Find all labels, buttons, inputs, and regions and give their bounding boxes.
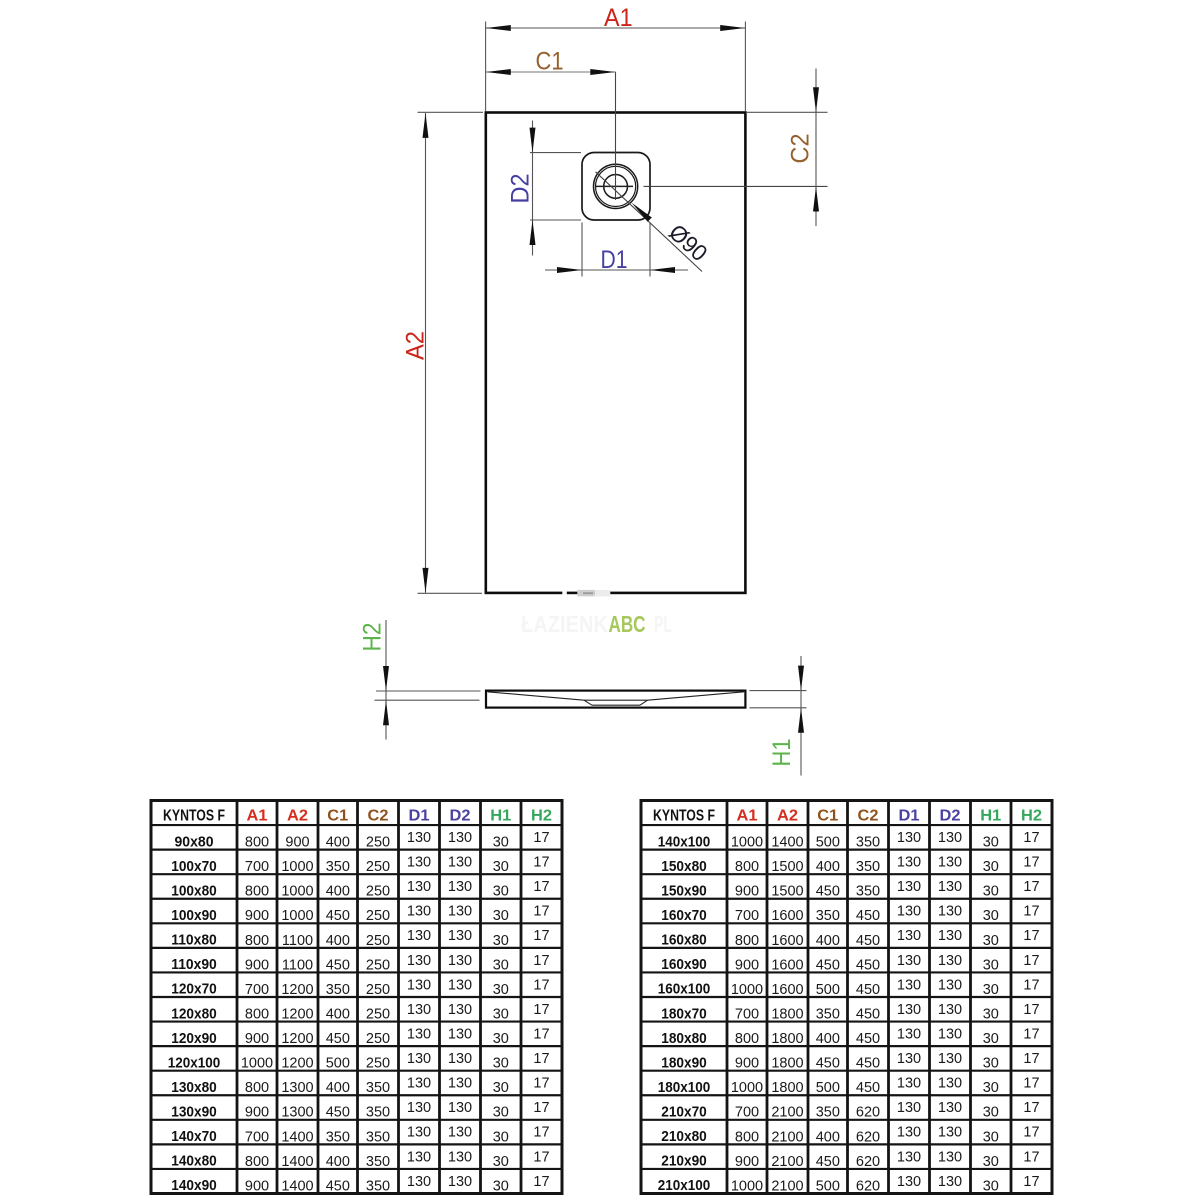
svg-text:210x70: 210x70 <box>661 1105 707 1121</box>
svg-text:30: 30 <box>983 1154 999 1170</box>
svg-text:2100: 2100 <box>771 1129 803 1145</box>
svg-text:130: 130 <box>448 855 472 871</box>
svg-text:30: 30 <box>983 1007 999 1023</box>
svg-text:130: 130 <box>938 1026 962 1042</box>
svg-text:130: 130 <box>897 855 921 871</box>
svg-text:450: 450 <box>856 908 880 924</box>
svg-text:350: 350 <box>856 835 880 851</box>
svg-text:350: 350 <box>366 1080 390 1096</box>
svg-text:700: 700 <box>735 908 759 924</box>
svg-text:C1: C1 <box>327 808 348 825</box>
svg-text:400: 400 <box>816 1031 840 1047</box>
svg-text:30: 30 <box>493 835 509 851</box>
svg-text:130: 130 <box>407 1149 431 1165</box>
svg-text:17: 17 <box>533 879 549 895</box>
svg-text:110x90: 110x90 <box>171 957 217 973</box>
svg-text:130: 130 <box>407 855 431 871</box>
svg-text:250: 250 <box>366 933 390 949</box>
svg-text:17: 17 <box>533 1051 549 1067</box>
svg-text:1000: 1000 <box>241 1056 273 1072</box>
svg-text:1600: 1600 <box>771 957 803 973</box>
svg-text:130: 130 <box>938 879 962 895</box>
svg-text:30: 30 <box>493 908 509 924</box>
svg-text:400: 400 <box>326 884 350 900</box>
svg-text:800: 800 <box>245 884 269 900</box>
svg-text:350: 350 <box>816 1105 840 1121</box>
svg-text:1000: 1000 <box>281 884 313 900</box>
svg-text:620: 620 <box>856 1154 880 1170</box>
svg-text:30: 30 <box>493 1105 509 1121</box>
svg-text:500: 500 <box>816 1178 840 1194</box>
svg-text:130: 130 <box>897 953 921 969</box>
svg-text:1000: 1000 <box>731 835 763 851</box>
svg-text:2100: 2100 <box>771 1178 803 1194</box>
svg-text:C1: C1 <box>536 48 564 76</box>
svg-text:130: 130 <box>448 1100 472 1116</box>
svg-text:800: 800 <box>245 933 269 949</box>
svg-text:17: 17 <box>533 953 549 969</box>
svg-text:700: 700 <box>245 982 269 998</box>
svg-text:450: 450 <box>856 1056 880 1072</box>
svg-text:130: 130 <box>407 879 431 895</box>
svg-text:500: 500 <box>816 1080 840 1096</box>
svg-text:450: 450 <box>856 933 880 949</box>
svg-text:180x100: 180x100 <box>658 1080 711 1096</box>
svg-text:130: 130 <box>448 1076 472 1092</box>
svg-text:130: 130 <box>897 1174 921 1190</box>
svg-text:1000: 1000 <box>731 982 763 998</box>
svg-text:17: 17 <box>533 1149 549 1165</box>
svg-text:100x70: 100x70 <box>171 859 217 875</box>
svg-text:17: 17 <box>533 855 549 871</box>
svg-text:130: 130 <box>897 1076 921 1092</box>
svg-text:250: 250 <box>366 908 390 924</box>
svg-text:17: 17 <box>533 830 549 846</box>
svg-text:30: 30 <box>983 835 999 851</box>
svg-text:D2: D2 <box>450 808 471 825</box>
svg-text:350: 350 <box>856 859 880 875</box>
svg-text:130: 130 <box>448 1125 472 1141</box>
svg-text:17: 17 <box>533 928 549 944</box>
svg-text:350: 350 <box>366 1178 390 1194</box>
svg-text:17: 17 <box>1023 953 1039 969</box>
svg-text:900: 900 <box>735 1154 759 1170</box>
svg-text:250: 250 <box>366 957 390 973</box>
svg-text:350: 350 <box>326 982 350 998</box>
svg-text:A2: A2 <box>287 808 308 825</box>
svg-text:17: 17 <box>1023 1076 1039 1092</box>
svg-text:130: 130 <box>938 1125 962 1141</box>
svg-text:400: 400 <box>326 1007 350 1023</box>
svg-text:130: 130 <box>938 830 962 846</box>
svg-text:130: 130 <box>407 1125 431 1141</box>
svg-text:30: 30 <box>983 1056 999 1072</box>
svg-text:17: 17 <box>533 1174 549 1190</box>
svg-text:450: 450 <box>326 1105 350 1121</box>
svg-text:A1: A1 <box>604 4 633 32</box>
svg-text:900: 900 <box>245 1178 269 1194</box>
svg-text:130: 130 <box>407 1076 431 1092</box>
svg-text:D2: D2 <box>940 808 961 825</box>
svg-text:130: 130 <box>897 928 921 944</box>
svg-text:140x90: 140x90 <box>171 1178 217 1194</box>
svg-text:1200: 1200 <box>281 1031 313 1047</box>
svg-text:A1: A1 <box>247 808 268 825</box>
svg-text:30: 30 <box>983 1178 999 1194</box>
svg-text:130: 130 <box>407 1026 431 1042</box>
svg-text:900: 900 <box>735 884 759 900</box>
svg-text:30: 30 <box>493 957 509 973</box>
svg-text:400: 400 <box>326 933 350 949</box>
svg-text:250: 250 <box>366 1007 390 1023</box>
svg-text:160x100: 160x100 <box>658 982 711 998</box>
svg-text:900: 900 <box>245 957 269 973</box>
svg-text:130: 130 <box>448 904 472 920</box>
svg-text:150x90: 150x90 <box>661 884 707 900</box>
svg-text:400: 400 <box>326 1080 350 1096</box>
svg-text:30: 30 <box>983 908 999 924</box>
svg-text:400: 400 <box>326 835 350 851</box>
svg-text:130: 130 <box>407 1051 431 1067</box>
svg-text:1600: 1600 <box>771 982 803 998</box>
svg-text:2100: 2100 <box>771 1154 803 1170</box>
svg-text:1800: 1800 <box>771 1007 803 1023</box>
svg-text:H2: H2 <box>359 623 387 652</box>
svg-text:700: 700 <box>735 1105 759 1121</box>
svg-text:30: 30 <box>983 1105 999 1121</box>
svg-text:D1: D1 <box>409 808 430 825</box>
svg-text:150x80: 150x80 <box>661 859 707 875</box>
svg-text:800: 800 <box>245 1080 269 1096</box>
svg-text:17: 17 <box>1023 879 1039 895</box>
svg-text:140x100: 140x100 <box>658 834 711 850</box>
svg-text:30: 30 <box>493 982 509 998</box>
svg-text:160x80: 160x80 <box>661 933 707 949</box>
svg-text:1400: 1400 <box>281 1154 313 1170</box>
svg-text:800: 800 <box>245 1007 269 1023</box>
svg-text:140x70: 140x70 <box>171 1129 217 1145</box>
svg-text:130x80: 130x80 <box>171 1080 217 1096</box>
svg-text:900: 900 <box>245 908 269 924</box>
svg-text:1400: 1400 <box>771 835 803 851</box>
svg-text:130: 130 <box>407 1174 431 1190</box>
svg-text:C2: C2 <box>858 808 879 825</box>
svg-text:17: 17 <box>1023 1002 1039 1018</box>
svg-text:17: 17 <box>1023 928 1039 944</box>
svg-text:17: 17 <box>1023 1051 1039 1067</box>
svg-text:D1: D1 <box>601 246 628 274</box>
svg-text:30: 30 <box>983 884 999 900</box>
svg-text:30: 30 <box>493 1154 509 1170</box>
svg-text:100x90: 100x90 <box>171 908 217 924</box>
svg-text:1000: 1000 <box>281 908 313 924</box>
svg-text:350: 350 <box>326 859 350 875</box>
svg-text:H1: H1 <box>980 808 1001 825</box>
svg-text:1200: 1200 <box>281 1007 313 1023</box>
svg-text:180x80: 180x80 <box>661 1031 707 1047</box>
svg-text:400: 400 <box>816 933 840 949</box>
svg-text:130: 130 <box>938 855 962 871</box>
svg-text:450: 450 <box>326 1031 350 1047</box>
svg-text:250: 250 <box>366 859 390 875</box>
svg-text:900: 900 <box>735 957 759 973</box>
svg-text:130: 130 <box>897 830 921 846</box>
svg-text:210x100: 210x100 <box>658 1178 711 1194</box>
svg-text:350: 350 <box>366 1154 390 1170</box>
svg-text:350: 350 <box>366 1105 390 1121</box>
svg-text:130: 130 <box>938 904 962 920</box>
svg-text:30: 30 <box>493 1178 509 1194</box>
svg-text:1400: 1400 <box>281 1178 313 1194</box>
svg-text:130: 130 <box>897 879 921 895</box>
svg-text:900: 900 <box>245 1105 269 1121</box>
svg-text:130: 130 <box>897 1149 921 1165</box>
svg-text:400: 400 <box>816 1129 840 1145</box>
svg-text:17: 17 <box>1023 1174 1039 1190</box>
svg-text:120x80: 120x80 <box>171 1006 217 1022</box>
svg-text:130: 130 <box>897 1051 921 1067</box>
svg-text:90x80: 90x80 <box>175 834 214 850</box>
svg-text:17: 17 <box>1023 1125 1039 1141</box>
svg-text:350: 350 <box>856 884 880 900</box>
svg-text:450: 450 <box>856 957 880 973</box>
svg-text:30: 30 <box>493 859 509 875</box>
svg-text:500: 500 <box>816 835 840 851</box>
svg-text:130: 130 <box>897 977 921 993</box>
svg-text:130: 130 <box>897 1125 921 1141</box>
svg-text:130: 130 <box>407 1100 431 1116</box>
svg-text:400: 400 <box>326 1154 350 1170</box>
svg-text:1600: 1600 <box>771 908 803 924</box>
svg-text:C1: C1 <box>817 808 838 825</box>
svg-text:130: 130 <box>407 953 431 969</box>
svg-text:KYNTOS F: KYNTOS F <box>653 808 715 825</box>
svg-text:620: 620 <box>856 1129 880 1145</box>
svg-text:30: 30 <box>493 1056 509 1072</box>
svg-text:250: 250 <box>366 884 390 900</box>
svg-text:D2: D2 <box>507 174 535 204</box>
svg-text:17: 17 <box>533 1100 549 1116</box>
svg-text:17: 17 <box>1023 830 1039 846</box>
svg-text:140x80: 140x80 <box>171 1154 217 1170</box>
svg-text:KYNTOS F: KYNTOS F <box>163 808 225 825</box>
svg-text:130: 130 <box>448 830 472 846</box>
svg-text:130: 130 <box>938 953 962 969</box>
svg-text:450: 450 <box>856 1007 880 1023</box>
svg-text:A1: A1 <box>737 808 758 825</box>
svg-text:450: 450 <box>816 1056 840 1072</box>
svg-text:700: 700 <box>735 1007 759 1023</box>
svg-text:450: 450 <box>856 1031 880 1047</box>
svg-text:30: 30 <box>983 982 999 998</box>
svg-text:30: 30 <box>493 1031 509 1047</box>
svg-text:1800: 1800 <box>771 1031 803 1047</box>
svg-text:350: 350 <box>816 1007 840 1023</box>
svg-text:130: 130 <box>448 1149 472 1165</box>
svg-text:130: 130 <box>897 1100 921 1116</box>
svg-text:130: 130 <box>407 928 431 944</box>
svg-text:450: 450 <box>326 908 350 924</box>
svg-text:1200: 1200 <box>281 1056 313 1072</box>
svg-text:130: 130 <box>407 977 431 993</box>
svg-text:120x90: 120x90 <box>171 1031 217 1047</box>
svg-text:130: 130 <box>448 928 472 944</box>
svg-text:1500: 1500 <box>771 859 803 875</box>
svg-text:C2: C2 <box>787 134 815 164</box>
svg-text:130: 130 <box>448 1051 472 1067</box>
svg-text:A2: A2 <box>402 331 430 360</box>
svg-text:1000: 1000 <box>731 1080 763 1096</box>
svg-text:30: 30 <box>983 957 999 973</box>
svg-text:30: 30 <box>493 1129 509 1145</box>
svg-text:H1: H1 <box>490 808 511 825</box>
svg-text:800: 800 <box>735 1031 759 1047</box>
svg-text:700: 700 <box>245 859 269 875</box>
svg-text:130: 130 <box>407 1002 431 1018</box>
svg-text:1800: 1800 <box>771 1056 803 1072</box>
svg-text:250: 250 <box>366 982 390 998</box>
svg-text:900: 900 <box>735 1056 759 1072</box>
svg-text:1000: 1000 <box>731 1178 763 1194</box>
svg-text:130: 130 <box>938 977 962 993</box>
svg-text:130: 130 <box>938 1100 962 1116</box>
svg-text:H2: H2 <box>531 808 552 825</box>
svg-text:1100: 1100 <box>282 957 313 973</box>
svg-text:H1: H1 <box>768 739 796 767</box>
svg-text:120x70: 120x70 <box>171 982 217 998</box>
svg-text:1500: 1500 <box>771 884 803 900</box>
svg-text:17: 17 <box>1023 855 1039 871</box>
svg-text:180x70: 180x70 <box>661 1006 707 1022</box>
svg-text:1200: 1200 <box>281 982 313 998</box>
svg-text:1400: 1400 <box>281 1129 313 1145</box>
svg-text:500: 500 <box>326 1056 350 1072</box>
svg-text:130: 130 <box>448 1026 472 1042</box>
svg-text:30: 30 <box>493 933 509 949</box>
svg-text:210x90: 210x90 <box>661 1154 707 1170</box>
svg-text:350: 350 <box>816 908 840 924</box>
svg-text:17: 17 <box>1023 1100 1039 1116</box>
svg-text:800: 800 <box>735 933 759 949</box>
svg-text:400: 400 <box>816 859 840 875</box>
svg-text:130: 130 <box>448 977 472 993</box>
svg-text:180x90: 180x90 <box>661 1055 707 1071</box>
svg-text:210x80: 210x80 <box>661 1129 707 1145</box>
svg-text:A2: A2 <box>777 808 798 825</box>
svg-text:1100: 1100 <box>282 933 313 949</box>
svg-text:1800: 1800 <box>771 1080 803 1096</box>
svg-text:17: 17 <box>533 977 549 993</box>
svg-text:700: 700 <box>245 1129 269 1145</box>
svg-text:450: 450 <box>816 884 840 900</box>
svg-text:130: 130 <box>938 1076 962 1092</box>
svg-text:30: 30 <box>983 1129 999 1145</box>
svg-text:1300: 1300 <box>281 1080 313 1096</box>
svg-text:800: 800 <box>735 1129 759 1145</box>
svg-text:30: 30 <box>493 1007 509 1023</box>
svg-text:900: 900 <box>245 1031 269 1047</box>
svg-text:120x100: 120x100 <box>168 1055 221 1071</box>
svg-text:250: 250 <box>366 835 390 851</box>
svg-text:17: 17 <box>1023 1026 1039 1042</box>
svg-text:250: 250 <box>366 1031 390 1047</box>
svg-text:130: 130 <box>897 1002 921 1018</box>
svg-text:2100: 2100 <box>771 1105 803 1121</box>
svg-text:130: 130 <box>407 830 431 846</box>
svg-text:17: 17 <box>1023 1149 1039 1165</box>
svg-text:350: 350 <box>366 1129 390 1145</box>
svg-text:800: 800 <box>245 835 269 851</box>
svg-text:620: 620 <box>856 1178 880 1194</box>
svg-text:900: 900 <box>285 835 309 851</box>
svg-text:450: 450 <box>856 982 880 998</box>
svg-text:H2: H2 <box>1021 808 1042 825</box>
svg-text:17: 17 <box>533 1076 549 1092</box>
svg-text:130: 130 <box>897 904 921 920</box>
svg-text:30: 30 <box>983 1080 999 1096</box>
svg-text:17: 17 <box>533 1002 549 1018</box>
svg-text:17: 17 <box>533 1026 549 1042</box>
svg-text:450: 450 <box>856 1080 880 1096</box>
svg-text:D1: D1 <box>899 808 920 825</box>
svg-text:30: 30 <box>983 933 999 949</box>
svg-text:800: 800 <box>245 1154 269 1170</box>
svg-text:450: 450 <box>326 957 350 973</box>
svg-text:17: 17 <box>1023 977 1039 993</box>
svg-text:C2: C2 <box>368 808 389 825</box>
svg-text:160x70: 160x70 <box>661 908 707 924</box>
svg-text:17: 17 <box>1023 904 1039 920</box>
svg-text:130: 130 <box>448 1174 472 1190</box>
svg-text:130: 130 <box>407 904 431 920</box>
svg-text:130x90: 130x90 <box>171 1105 217 1121</box>
svg-text:110x80: 110x80 <box>171 933 217 949</box>
svg-text:130: 130 <box>448 1002 472 1018</box>
svg-text:160x90: 160x90 <box>661 957 707 973</box>
svg-text:17: 17 <box>533 1125 549 1141</box>
svg-text:30: 30 <box>493 1080 509 1096</box>
svg-text:1600: 1600 <box>771 933 803 949</box>
svg-text:450: 450 <box>816 1154 840 1170</box>
svg-text:17: 17 <box>533 904 549 920</box>
svg-text:130: 130 <box>938 1174 962 1190</box>
svg-text:130: 130 <box>938 928 962 944</box>
svg-text:130: 130 <box>938 1002 962 1018</box>
svg-text:130: 130 <box>448 953 472 969</box>
svg-text:30: 30 <box>493 884 509 900</box>
svg-text:130: 130 <box>448 879 472 895</box>
svg-text:800: 800 <box>735 859 759 875</box>
svg-text:500: 500 <box>816 982 840 998</box>
svg-text:30: 30 <box>983 1031 999 1047</box>
svg-text:250: 250 <box>366 1056 390 1072</box>
svg-text:620: 620 <box>856 1105 880 1121</box>
svg-text:130: 130 <box>938 1149 962 1165</box>
svg-text:30: 30 <box>983 859 999 875</box>
svg-text:130: 130 <box>938 1051 962 1067</box>
svg-text:450: 450 <box>326 1178 350 1194</box>
svg-text:100x80: 100x80 <box>171 884 217 900</box>
svg-text:350: 350 <box>326 1129 350 1145</box>
svg-text:130: 130 <box>897 1026 921 1042</box>
svg-text:1300: 1300 <box>281 1105 313 1121</box>
svg-text:1000: 1000 <box>281 859 313 875</box>
svg-text:450: 450 <box>816 957 840 973</box>
